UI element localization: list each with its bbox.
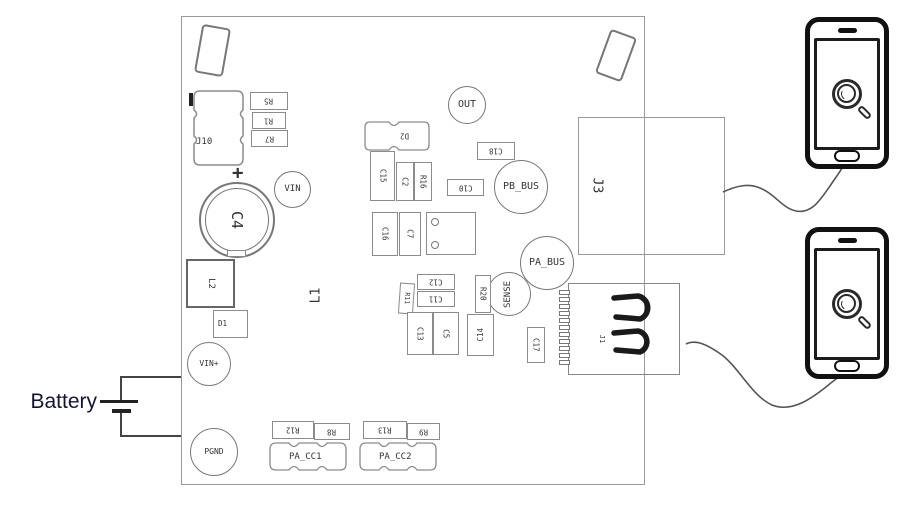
capacitor-c18: C18 xyxy=(477,142,515,160)
battery-wire-top xyxy=(120,376,181,378)
j1-pin xyxy=(559,346,570,351)
j1-pin xyxy=(559,339,570,344)
ic-pin2-hole xyxy=(431,241,439,249)
j10-pin1-mark xyxy=(189,93,193,106)
vin-plus-label: VIN+ xyxy=(199,360,218,368)
capacitor-c15: C15 xyxy=(370,151,395,201)
sense-testpoint: SENSE xyxy=(487,272,531,316)
capacitor-c11: C11 xyxy=(417,291,455,307)
phone-1-screen xyxy=(814,38,880,150)
diode-d2-outline xyxy=(362,119,432,153)
r13-label: R13 xyxy=(378,426,392,434)
pa-cc1-label: PA_CC1 xyxy=(289,453,322,462)
out-testpoint: OUT xyxy=(448,86,486,124)
polarity-plus-mark: + xyxy=(232,162,243,184)
c15-label: C15 xyxy=(379,169,387,183)
magnifier-handle xyxy=(857,105,873,121)
resistor-r7: R7 xyxy=(251,130,288,147)
resistor-r5: R5 xyxy=(250,92,288,110)
resistor-r12: R12 xyxy=(272,421,314,439)
capacitor-c5: C5 xyxy=(433,312,459,355)
capacitor-c12: C12 xyxy=(417,274,455,290)
j1-shield-staples xyxy=(606,288,662,363)
pcb-diagram: J10 R5 R1 R7 + C4 VIN L2 D1 VIN+ PGND Ba… xyxy=(0,0,906,510)
r9-label: R9 xyxy=(419,428,428,436)
magnifier-handle xyxy=(857,315,873,331)
j1-pin xyxy=(559,353,570,358)
resistor-r13: R13 xyxy=(363,421,407,439)
r8-label: R8 xyxy=(327,428,336,436)
j10-label: J10 xyxy=(196,138,212,147)
r12-label: R12 xyxy=(286,426,300,434)
j1-pin xyxy=(559,297,570,302)
diode-d1: D1 xyxy=(213,310,248,338)
battery-wire-bottom xyxy=(120,435,181,437)
vin-plus-testpoint: VIN+ xyxy=(187,342,231,386)
j1-pin xyxy=(559,311,570,316)
battery-label: Battery xyxy=(0,390,97,414)
j3-connector: J3 xyxy=(578,117,725,255)
r1-label: R1 xyxy=(264,117,273,125)
capacitor-c13: C13 xyxy=(407,312,433,355)
magnifier-icon xyxy=(832,79,862,109)
out-label: OUT xyxy=(458,100,476,110)
resistor-r1: R1 xyxy=(252,112,286,129)
pa-bus-label: PA_BUS xyxy=(529,258,565,268)
battery-plate-long xyxy=(100,400,138,403)
ic-pin1-hole xyxy=(431,218,439,226)
c18-label: C18 xyxy=(489,147,503,155)
wire-j3-to-phone-1 xyxy=(723,168,842,211)
resistor-r16: R16 xyxy=(414,162,432,201)
l2-label: L2 xyxy=(206,278,215,289)
resistor-r8: R8 xyxy=(314,423,350,440)
vin-label: VIN xyxy=(284,185,300,194)
phone-1-speaker xyxy=(838,28,857,33)
j1-pin xyxy=(559,304,570,309)
c4-polarity-tab xyxy=(227,250,246,257)
c2-label: C2 xyxy=(401,177,409,186)
c17-label: C17 xyxy=(532,338,540,352)
resistor-r20: R20 xyxy=(475,275,491,313)
phone-1 xyxy=(805,17,889,169)
r11-label: R11 xyxy=(403,292,410,304)
magnifier-icon xyxy=(832,289,862,319)
r16-label: R16 xyxy=(419,175,427,189)
j1-pin xyxy=(559,325,570,330)
phone-1-home-button xyxy=(834,150,860,162)
c16-label: C16 xyxy=(381,227,389,241)
j1-pin xyxy=(559,318,570,323)
sense-label: SENSE xyxy=(505,280,514,307)
j1-pin xyxy=(559,360,570,365)
d2-label: D2 xyxy=(400,132,409,140)
c7-label: C7 xyxy=(406,229,414,238)
capacitor-c14: C14 xyxy=(467,314,494,356)
inductor-l2: L2 xyxy=(186,259,235,308)
pgnd-testpoint: PGND xyxy=(190,428,238,476)
battery-lead-top xyxy=(120,376,122,402)
c11-label: C11 xyxy=(429,295,443,303)
c13-label: C13 xyxy=(416,327,424,341)
capacitor-c16: C16 xyxy=(372,212,398,256)
capacitor-c10: C10 xyxy=(447,179,484,196)
capacitor-c4: C4 xyxy=(199,182,275,258)
c4-label: C4 xyxy=(228,211,246,229)
capacitor-c7: C7 xyxy=(399,212,421,256)
j1-label: J1 xyxy=(598,335,606,343)
battery-lead-bottom xyxy=(120,413,122,437)
r20-label: R20 xyxy=(479,287,487,301)
c12-label: C12 xyxy=(429,278,443,286)
capacitor-c2: C2 xyxy=(396,162,414,201)
r5-label: R5 xyxy=(264,97,273,105)
d1-label: D1 xyxy=(218,320,227,328)
c10-label: C10 xyxy=(459,184,473,192)
c14-label: C14 xyxy=(477,328,485,342)
pa-bus-testpoint: PA_BUS xyxy=(520,236,574,290)
vin-testpoint: VIN xyxy=(274,171,311,208)
j1-pin xyxy=(559,332,570,337)
j3-label: J3 xyxy=(589,178,604,194)
resistor-r9: R9 xyxy=(407,423,440,440)
phone-2-speaker xyxy=(838,238,857,243)
pb-bus-label: PB_BUS xyxy=(503,182,539,192)
pgnd-label: PGND xyxy=(204,448,223,456)
j1-pin xyxy=(559,290,570,295)
phone-2-home-button xyxy=(834,360,860,372)
r7-label: R7 xyxy=(265,135,274,143)
c5-label: C5 xyxy=(442,329,450,338)
phone-2-screen xyxy=(814,248,880,360)
pb-bus-testpoint: PB_BUS xyxy=(494,160,548,214)
j10-connector-outline xyxy=(190,88,247,168)
phone-2 xyxy=(805,227,889,379)
resistor-r11: R11 xyxy=(398,283,415,315)
l1-label: L1 xyxy=(308,288,323,304)
capacitor-c17: C17 xyxy=(527,327,545,363)
pa-cc2-label: PA_CC2 xyxy=(379,453,412,462)
